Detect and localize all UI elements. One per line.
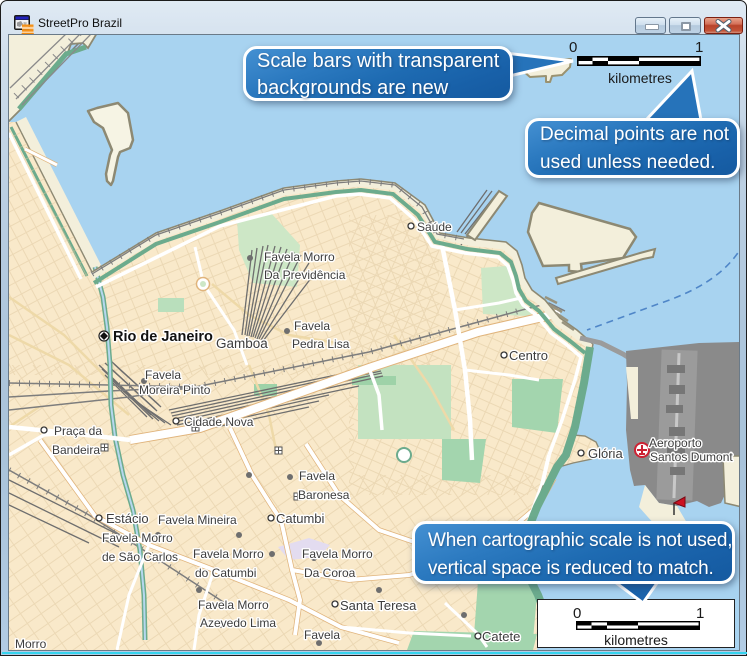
svg-text:Pedra Lisa: Pedra Lisa (292, 337, 350, 351)
svg-text:Saúde: Saúde (417, 220, 452, 234)
svg-text:Favela Mineira: Favela Mineira (158, 513, 237, 527)
svg-text:Baronesa: Baronesa (298, 488, 350, 502)
svg-text:do Catumbi: do Catumbi (195, 566, 256, 580)
svg-text:Catumbi: Catumbi (276, 511, 325, 526)
svg-text:Santos Dumont: Santos Dumont (650, 450, 733, 464)
svg-text:Da Previdência: Da Previdência (264, 268, 346, 282)
svg-text:Centro: Centro (509, 348, 548, 363)
svg-text:Favela Morro: Favela Morro (302, 547, 373, 561)
svg-text:Glória: Glória (588, 446, 623, 461)
svg-text:Favela Morro: Favela Morro (102, 531, 173, 545)
svg-text:Rio de Janeiro: Rio de Janeiro (113, 329, 213, 345)
svg-text:Favela: Favela (304, 628, 340, 642)
svg-text:Favela Morro: Favela Morro (193, 547, 264, 561)
svg-text:Favela Morro: Favela Morro (264, 250, 335, 264)
svg-text:Catete: Catete (482, 629, 520, 644)
svg-text:Santa Teresa: Santa Teresa (340, 598, 417, 613)
svg-text:Moreira Pinto: Moreira Pinto (139, 383, 211, 397)
svg-text:Favela: Favela (299, 469, 335, 483)
svg-text:Bandeira: Bandeira (52, 443, 100, 457)
svg-text:Da Coroa: Da Coroa (304, 566, 356, 580)
svg-text:Azevedo Lima: Azevedo Lima (200, 616, 276, 630)
svg-text:Estácio: Estácio (106, 511, 149, 526)
svg-text:de São Carlos: de São Carlos (102, 550, 178, 564)
svg-text:Gamboa: Gamboa (216, 336, 268, 351)
svg-text:Cidade Nova: Cidade Nova (184, 415, 254, 429)
svg-text:Praça da: Praça da (54, 424, 102, 438)
svg-text:Favela Morro: Favela Morro (198, 598, 269, 612)
svg-text:Morro: Morro (15, 637, 47, 650)
svg-text:Favela: Favela (145, 368, 181, 382)
svg-text:Favela: Favela (294, 319, 330, 333)
svg-text:Aeroporto: Aeroporto (649, 436, 702, 450)
